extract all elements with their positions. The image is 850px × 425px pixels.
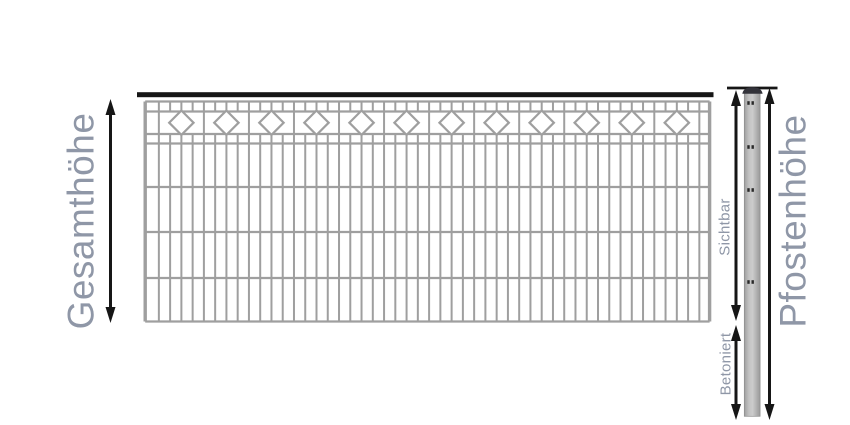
post-body xyxy=(744,91,760,417)
diamond-ornament xyxy=(394,111,418,135)
post-bracket-mark xyxy=(752,188,754,192)
diamond-ornament xyxy=(349,111,373,135)
diamond-ornament xyxy=(259,111,283,135)
diamond-ornament xyxy=(304,111,328,135)
diamond-ornament xyxy=(484,111,508,135)
pfostenhoehe-label: Pfostenhöhe xyxy=(775,114,812,327)
post-bracket-mark xyxy=(747,280,749,284)
post-bracket-mark xyxy=(752,101,754,105)
post-bracket-mark xyxy=(752,145,754,149)
betoniert-label: Betoniert xyxy=(718,333,733,396)
fence-top-bar xyxy=(137,92,714,97)
gesamthoehe-label: Gesamthöhe xyxy=(63,113,100,330)
fence-panel xyxy=(137,92,714,321)
diamond-ornament xyxy=(620,111,644,135)
diamond-ornament xyxy=(530,111,554,135)
fence-grid xyxy=(145,102,709,322)
fence-dimension-diagram: Gesamthöhe Sichtbar Betoniert Pfostenhöh… xyxy=(0,0,850,425)
diamond-ornament xyxy=(439,111,463,135)
post-bracket-mark xyxy=(752,280,754,284)
gesamthoehe-arrow xyxy=(106,99,116,323)
sichtbar-label: Sichtbar xyxy=(717,198,732,255)
post-bracket-mark xyxy=(747,188,749,192)
diamond-ornament xyxy=(169,111,193,135)
diamond-ornament xyxy=(214,111,238,135)
diamond-ornament xyxy=(665,111,689,135)
post-bracket-mark xyxy=(747,145,749,149)
post-bracket-mark xyxy=(747,101,749,105)
diamond-ornament xyxy=(575,111,599,135)
